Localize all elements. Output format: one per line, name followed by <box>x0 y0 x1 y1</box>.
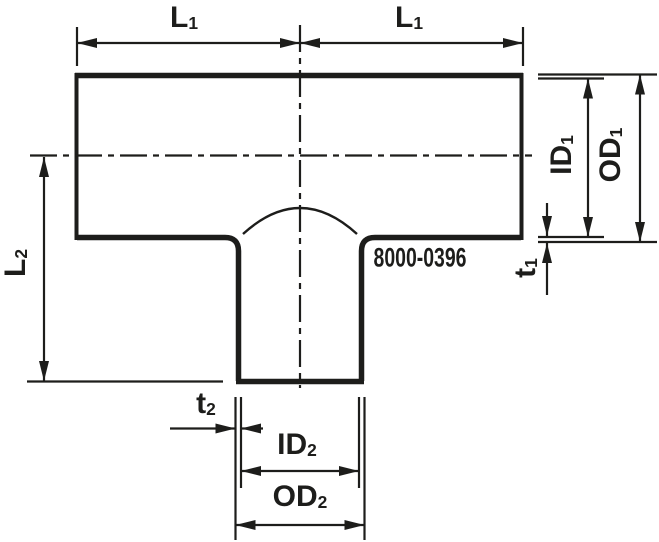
dim-label-id1: ID1 <box>547 135 577 175</box>
extension-lines <box>27 27 657 540</box>
centerlines <box>30 25 532 388</box>
dim-label-od2: OD2 <box>273 482 328 512</box>
dim-label-l1-left: L1 <box>170 3 198 33</box>
dim-label-t1-base: t <box>509 268 542 278</box>
dim-label-od1: OD1 <box>596 128 626 183</box>
dim-label-l1-left-base: L <box>170 1 188 34</box>
dim-label-l1-right: L1 <box>395 3 423 33</box>
drawing-canvas: L1 L1 L2 ID1 OD1 t1 t2 ID2 OD2 8000-0396 <box>0 0 659 542</box>
dim-label-l1-right-sub: 1 <box>413 13 423 33</box>
part-number: 8000-0396 <box>374 245 467 272</box>
dim-label-l2-sub: 2 <box>11 249 31 259</box>
tee-linework <box>0 0 659 542</box>
dim-label-l2-base: L <box>0 259 32 277</box>
dim-label-od1-base: OD <box>594 137 627 182</box>
dim-label-t1: t1 <box>511 258 541 278</box>
dim-label-l1-left-sub: 1 <box>188 13 198 33</box>
dim-label-id1-sub: 1 <box>557 135 577 145</box>
dim-label-l1-right-base: L <box>395 1 413 34</box>
dim-label-od1-sub: 1 <box>606 128 626 138</box>
dim-label-t2-base: t <box>196 387 206 420</box>
dim-label-id1-base: ID <box>545 145 578 175</box>
dim-label-t1-sub: 1 <box>521 258 541 268</box>
dim-label-od2-sub: 2 <box>318 492 328 512</box>
dim-label-id2-sub: 2 <box>307 440 317 460</box>
dim-label-t2-sub: 2 <box>206 399 216 419</box>
dimension-lines <box>44 43 640 525</box>
dim-label-l2: L2 <box>1 249 31 277</box>
dim-label-od2-base: OD <box>273 480 318 513</box>
dim-label-id2-base: ID <box>277 428 307 461</box>
dim-label-t2: t2 <box>196 389 216 419</box>
arrowheads <box>39 38 645 530</box>
dim-label-id2: ID2 <box>277 430 317 460</box>
